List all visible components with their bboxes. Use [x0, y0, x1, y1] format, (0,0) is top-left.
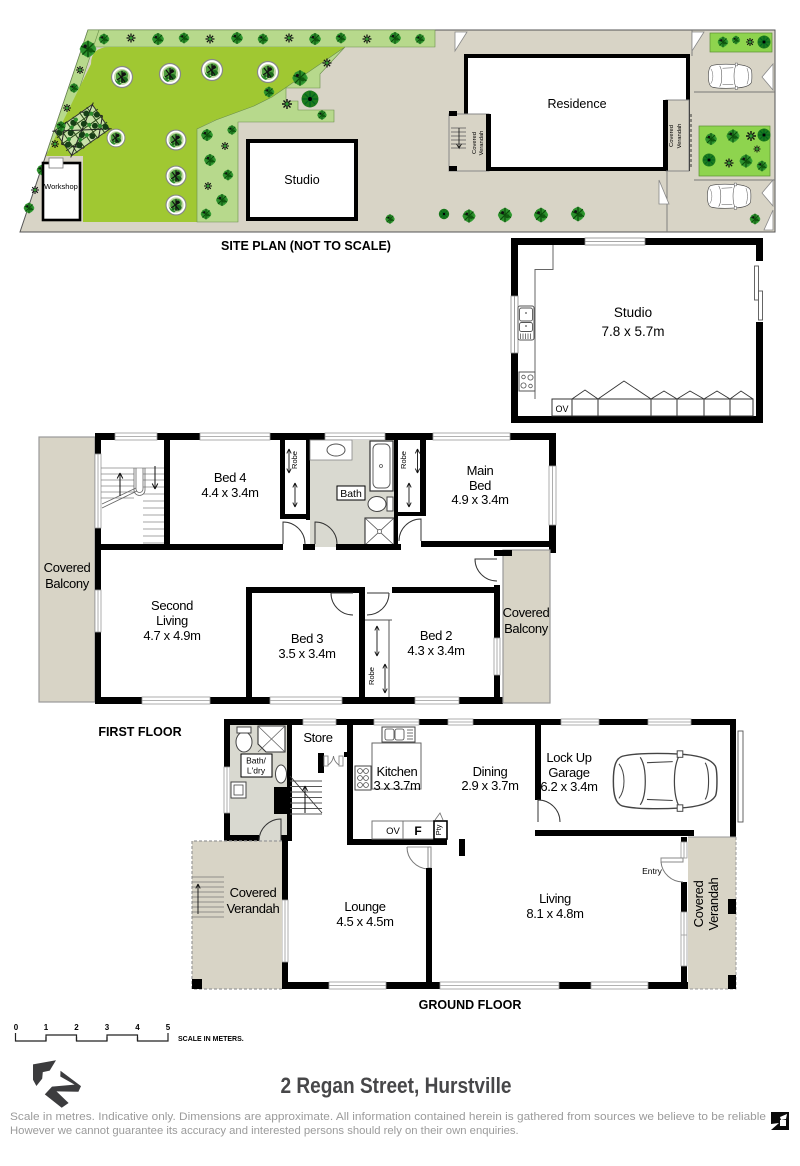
svg-text:OV: OV	[386, 826, 400, 837]
svg-text:Lounge: Lounge	[344, 899, 385, 914]
svg-text:Verandah: Verandah	[677, 124, 683, 149]
svg-text:Studio: Studio	[614, 305, 652, 320]
svg-text:Bath/: Bath/	[246, 756, 266, 766]
svg-text:Garage: Garage	[548, 765, 589, 780]
svg-text:Robe: Robe	[367, 667, 376, 685]
svg-text:Verandah: Verandah	[479, 131, 485, 156]
svg-text:Covered: Covered	[472, 132, 478, 154]
svg-text:3 x 3.7m: 3 x 3.7m	[373, 778, 420, 793]
svg-text:Balcony: Balcony	[504, 621, 549, 636]
svg-text:7.8 x 5.7m: 7.8 x 5.7m	[601, 324, 664, 339]
svg-text:3.5 x 3.4m: 3.5 x 3.4m	[278, 646, 335, 661]
svg-text:4.4 x 3.4m: 4.4 x 3.4m	[201, 485, 258, 500]
svg-text:4.3 x 3.4m: 4.3 x 3.4m	[407, 643, 464, 658]
svg-text:Covered: Covered	[44, 560, 91, 575]
svg-text:Store: Store	[303, 730, 332, 745]
svg-text:6.2 x 3.4m: 6.2 x 3.4m	[540, 779, 597, 794]
svg-text:Main: Main	[467, 463, 494, 478]
svg-text:Covered: Covered	[230, 885, 277, 900]
svg-text:Verandah: Verandah	[227, 901, 280, 916]
svg-text:Living: Living	[156, 613, 188, 628]
svg-text:L'dry: L'dry	[247, 766, 266, 776]
svg-text:5: 5	[166, 1023, 171, 1032]
svg-text:Scale in metres. Indicative on: Scale in metres. Indicative only. Dimens…	[10, 1111, 766, 1123]
svg-text:Bath: Bath	[340, 488, 362, 500]
svg-text:2 Regan Street, Hurstville: 2 Regan Street, Hurstville	[281, 1073, 512, 1098]
svg-text:Residence: Residence	[547, 97, 606, 111]
svg-text:GROUND FLOOR: GROUND FLOOR	[419, 998, 522, 1012]
svg-text:1: 1	[44, 1023, 49, 1032]
svg-text:Kitchen: Kitchen	[377, 764, 418, 779]
svg-text:Robe: Robe	[399, 451, 408, 469]
svg-text:Entry: Entry	[642, 866, 663, 876]
svg-text:2.9 x 3.7m: 2.9 x 3.7m	[461, 778, 518, 793]
svg-text:F: F	[414, 824, 421, 838]
svg-text:OV: OV	[555, 404, 568, 414]
svg-text:Lock Up: Lock Up	[546, 750, 591, 765]
svg-text:4.9 x 3.4m: 4.9 x 3.4m	[451, 492, 508, 507]
svg-text:Bed 3: Bed 3	[291, 631, 323, 646]
svg-text:Dining: Dining	[473, 764, 508, 779]
svg-text:Covered: Covered	[503, 605, 550, 620]
svg-text:8.1 x 4.8m: 8.1 x 4.8m	[526, 906, 583, 921]
svg-text:Covered: Covered	[691, 881, 706, 928]
svg-text:0: 0	[14, 1023, 19, 1032]
svg-text:FIRST FLOOR: FIRST FLOOR	[98, 725, 181, 739]
svg-text:3: 3	[105, 1023, 110, 1032]
svg-text:4.7 x 4.9m: 4.7 x 4.9m	[143, 628, 200, 643]
svg-text:Verandah: Verandah	[706, 877, 721, 930]
svg-text:Balcony: Balcony	[45, 576, 90, 591]
svg-text:Bed: Bed	[469, 478, 491, 493]
svg-text:However we cannot guarantee it: However we cannot guarantee its accuracy…	[10, 1125, 519, 1137]
svg-text:Pty: Pty	[434, 824, 443, 835]
svg-text:Robe: Robe	[290, 451, 299, 469]
svg-text:SCALE IN METERS.: SCALE IN METERS.	[178, 1036, 244, 1043]
svg-text:Bed 2: Bed 2	[420, 628, 452, 643]
svg-text:4.5 x 4.5m: 4.5 x 4.5m	[336, 914, 393, 929]
svg-text:Bed 4: Bed 4	[214, 470, 246, 485]
svg-text:Second: Second	[151, 598, 193, 613]
svg-text:Workshop: Workshop	[44, 182, 78, 191]
svg-text:Living: Living	[539, 891, 571, 906]
svg-text:4: 4	[135, 1023, 140, 1032]
svg-text:Studio: Studio	[284, 173, 319, 187]
svg-text:Covered: Covered	[669, 125, 675, 147]
svg-text:SITE PLAN (NOT TO SCALE): SITE PLAN (NOT TO SCALE)	[221, 239, 391, 253]
svg-text:2: 2	[74, 1023, 79, 1032]
